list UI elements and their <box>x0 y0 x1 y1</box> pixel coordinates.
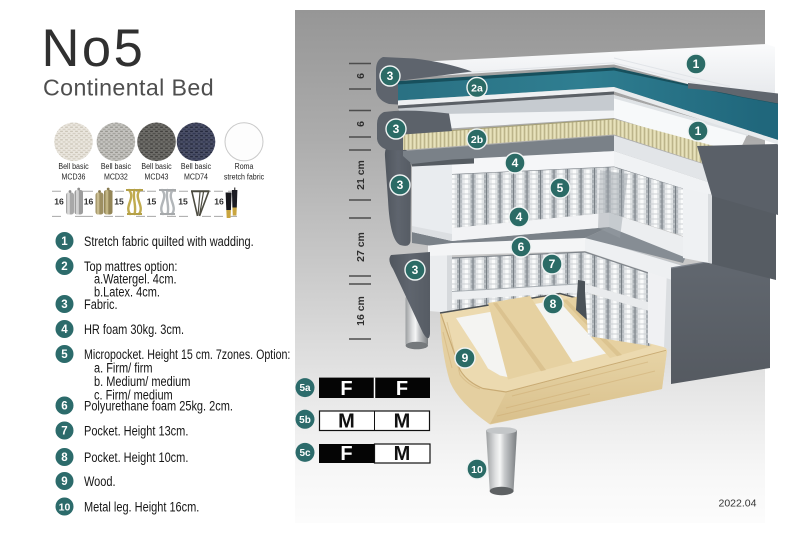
svg-text:15: 15 <box>147 197 157 207</box>
svg-text:Bell basic: Bell basic <box>101 161 131 171</box>
svg-text:3: 3 <box>61 299 67 311</box>
svg-text:Wood.: Wood. <box>84 474 116 490</box>
svg-text:1: 1 <box>693 57 700 71</box>
svg-text:stretch fabric: stretch fabric <box>224 172 264 182</box>
svg-text:5a: 5a <box>299 383 311 394</box>
svg-text:5: 5 <box>61 349 68 361</box>
svg-text:21 cm: 21 cm <box>355 160 367 190</box>
svg-text:Roma: Roma <box>235 161 254 171</box>
svg-text:7: 7 <box>549 257 556 271</box>
svg-text:3: 3 <box>387 69 394 83</box>
svg-text:3: 3 <box>393 122 400 136</box>
svg-text:27 cm: 27 cm <box>355 232 367 262</box>
svg-text:Polyurethane foam 25kg. 2cm.: Polyurethane foam 25kg. 2cm. <box>84 398 233 414</box>
svg-text:Continental Bed: Continental Bed <box>43 75 214 101</box>
svg-text:4: 4 <box>512 156 519 170</box>
svg-text:Metal leg. Height 16cm.: Metal leg. Height 16cm. <box>84 499 199 515</box>
svg-text:Bell basic: Bell basic <box>58 161 88 171</box>
svg-text:Pocket. Height 13cm.: Pocket. Height 13cm. <box>84 423 188 439</box>
svg-text:16 cm: 16 cm <box>355 296 367 326</box>
svg-text:6: 6 <box>61 401 67 413</box>
svg-text:Bell basic: Bell basic <box>141 161 171 171</box>
svg-text:4: 4 <box>61 324 68 336</box>
svg-text:M: M <box>394 443 411 465</box>
svg-text:8: 8 <box>550 297 557 311</box>
svg-text:16: 16 <box>84 197 94 207</box>
svg-text:1: 1 <box>695 124 702 138</box>
svg-text:F: F <box>396 378 408 400</box>
svg-text:Stretch fabric quilted with wa: Stretch fabric quilted with wadding. <box>84 234 254 250</box>
svg-text:8: 8 <box>61 452 68 464</box>
svg-text:MCD43: MCD43 <box>145 172 169 182</box>
svg-text:Pocket. Height 10cm.: Pocket. Height 10cm. <box>84 450 188 466</box>
svg-text:15: 15 <box>178 197 188 207</box>
svg-text:10: 10 <box>471 464 483 476</box>
svg-text:2b: 2b <box>471 134 483 146</box>
svg-text:M: M <box>394 411 411 433</box>
svg-text:MCD36: MCD36 <box>62 172 86 182</box>
svg-text:2: 2 <box>61 261 67 273</box>
svg-text:Bell basic: Bell basic <box>181 161 211 171</box>
svg-text:5c: 5c <box>299 448 311 459</box>
svg-text:4: 4 <box>516 210 523 224</box>
svg-text:F: F <box>340 378 352 400</box>
svg-text:10: 10 <box>59 502 71 514</box>
svg-text:6: 6 <box>518 240 525 254</box>
svg-text:6: 6 <box>355 73 367 79</box>
svg-text:9: 9 <box>462 351 469 365</box>
svg-text:MCD32: MCD32 <box>104 172 128 182</box>
svg-text:5b: 5b <box>299 415 311 426</box>
svg-text:F: F <box>340 443 352 465</box>
svg-text:16: 16 <box>214 197 224 207</box>
svg-text:1: 1 <box>61 236 68 248</box>
svg-text:2022.04: 2022.04 <box>719 498 757 510</box>
svg-text:15: 15 <box>114 197 124 207</box>
svg-text:3: 3 <box>412 263 419 277</box>
svg-text:No5: No5 <box>42 19 146 78</box>
svg-text:2a: 2a <box>471 83 483 95</box>
svg-text:9: 9 <box>61 476 67 488</box>
svg-text:HR foam 30kg. 3cm.: HR foam 30kg. 3cm. <box>84 322 184 338</box>
svg-text:Fabric.: Fabric. <box>84 297 118 313</box>
svg-text:16: 16 <box>54 197 64 207</box>
svg-text:MCD74: MCD74 <box>184 172 208 182</box>
svg-text:7: 7 <box>61 426 67 438</box>
svg-text:6: 6 <box>355 121 367 127</box>
svg-text:3: 3 <box>397 178 404 192</box>
svg-text:M: M <box>338 411 355 433</box>
svg-text:5: 5 <box>557 181 564 195</box>
